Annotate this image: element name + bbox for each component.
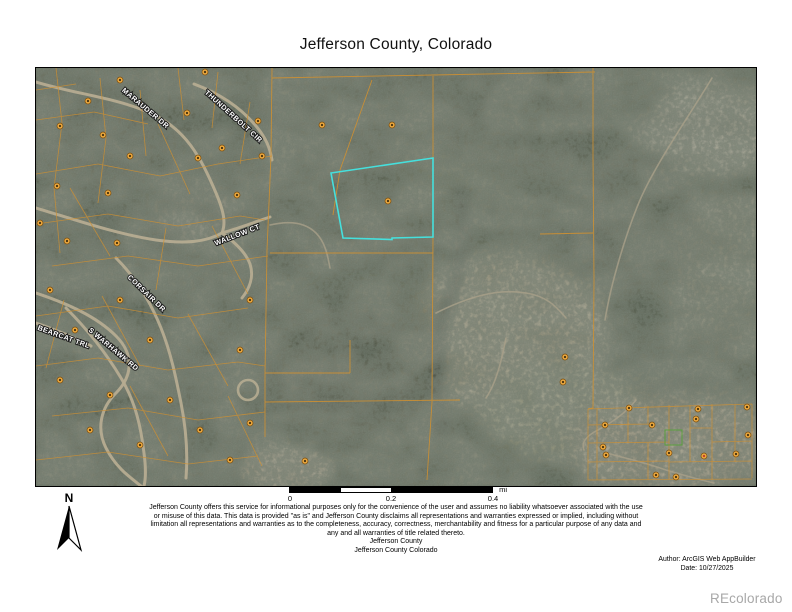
author-line: Author: ArcGIS Web AppBuilder bbox=[632, 555, 782, 564]
address-point-core bbox=[199, 429, 201, 431]
agency-name: Jefferson County bbox=[96, 538, 696, 547]
address-point-core bbox=[321, 124, 323, 126]
address-point-core bbox=[59, 379, 61, 381]
address-point-core bbox=[391, 124, 393, 126]
address-point-core bbox=[107, 192, 109, 194]
address-point-core bbox=[119, 79, 121, 81]
disclaimer-line: limitation all representations and warra… bbox=[96, 521, 696, 530]
address-point-core bbox=[675, 476, 677, 478]
address-point-core bbox=[102, 134, 104, 136]
address-point-core bbox=[746, 406, 748, 408]
address-point-core bbox=[59, 125, 61, 127]
scale-tick-1: 0.2 bbox=[386, 494, 396, 503]
map-canvas[interactable]: MARAUDER DRTHUNDERBOLT CIRWALLOW CTCORSA… bbox=[36, 68, 756, 486]
address-point-core bbox=[119, 299, 121, 301]
address-point-core bbox=[197, 157, 199, 159]
page-title: Jefferson County, Colorado bbox=[0, 36, 792, 54]
address-point-core bbox=[239, 349, 241, 351]
address-point-core bbox=[668, 452, 670, 454]
address-point-core bbox=[257, 120, 259, 122]
address-point-core bbox=[229, 459, 231, 461]
scale-bar: mi 0 0.2 0.4 bbox=[289, 487, 493, 503]
address-point-core bbox=[703, 455, 705, 457]
disclaimer-line: Jefferson County offers this service for… bbox=[96, 504, 696, 513]
address-point-core bbox=[56, 185, 58, 187]
address-point-core bbox=[89, 429, 91, 431]
address-point-core bbox=[747, 434, 749, 436]
address-point-core bbox=[697, 408, 699, 410]
author-block: Author: ArcGIS Web AppBuilder Date: 10/2… bbox=[632, 555, 782, 573]
address-point-core bbox=[695, 418, 697, 420]
address-point-core bbox=[116, 242, 118, 244]
address-point-core bbox=[109, 394, 111, 396]
scale-segment bbox=[290, 488, 341, 492]
address-point-core bbox=[651, 424, 653, 426]
address-point-core bbox=[387, 200, 389, 202]
address-point-core bbox=[74, 329, 76, 331]
address-point-core bbox=[602, 446, 604, 448]
north-arrow-right-half bbox=[69, 506, 81, 550]
watermark: REcolorado bbox=[710, 591, 783, 606]
disclaimer-line: any and all warranties of title related … bbox=[96, 530, 696, 539]
address-point-core bbox=[169, 399, 171, 401]
scale-segment bbox=[341, 488, 392, 492]
scale-ticks: 0 0.2 0.4 bbox=[289, 493, 493, 503]
address-point-core bbox=[261, 155, 263, 157]
scale-unit: mi bbox=[499, 485, 507, 494]
address-point-core bbox=[249, 299, 251, 301]
scale-segment bbox=[391, 488, 492, 492]
address-point-core bbox=[204, 71, 206, 73]
address-point-core bbox=[604, 424, 606, 426]
north-arrow: N bbox=[50, 486, 90, 558]
address-point-core bbox=[66, 240, 68, 242]
north-arrow-label: N bbox=[65, 491, 74, 505]
address-point-core bbox=[655, 474, 657, 476]
address-point-core bbox=[149, 339, 151, 341]
north-arrow-left-half bbox=[57, 506, 69, 550]
map-frame: MARAUDER DRTHUNDERBOLT CIRWALLOW CTCORSA… bbox=[35, 67, 757, 487]
address-point-core bbox=[129, 155, 131, 157]
address-point-core bbox=[564, 356, 566, 358]
scale-tick-2: 0.4 bbox=[488, 494, 498, 503]
address-point-core bbox=[49, 289, 51, 291]
address-point-core bbox=[304, 460, 306, 462]
address-point-core bbox=[735, 453, 737, 455]
address-point-core bbox=[249, 422, 251, 424]
address-point-core bbox=[186, 112, 188, 114]
address-point-core bbox=[87, 100, 89, 102]
date-line: Date: 10/27/2025 bbox=[632, 564, 782, 573]
address-point-core bbox=[628, 407, 630, 409]
address-point-core bbox=[139, 444, 141, 446]
scale-tick-0: 0 bbox=[288, 494, 292, 503]
address-point-core bbox=[562, 381, 564, 383]
disclaimer-text: Jefferson County offers this service for… bbox=[96, 504, 696, 556]
address-point-core bbox=[39, 222, 41, 224]
address-point-core bbox=[605, 454, 607, 456]
address-point-core bbox=[236, 194, 238, 196]
agency-subtitle: Jefferson County Colorado bbox=[96, 547, 696, 556]
address-point-core bbox=[221, 147, 223, 149]
print-page: Jefferson County, Colorado bbox=[0, 0, 792, 612]
disclaimer-line: or misuse of this data. This data is pro… bbox=[96, 513, 696, 522]
